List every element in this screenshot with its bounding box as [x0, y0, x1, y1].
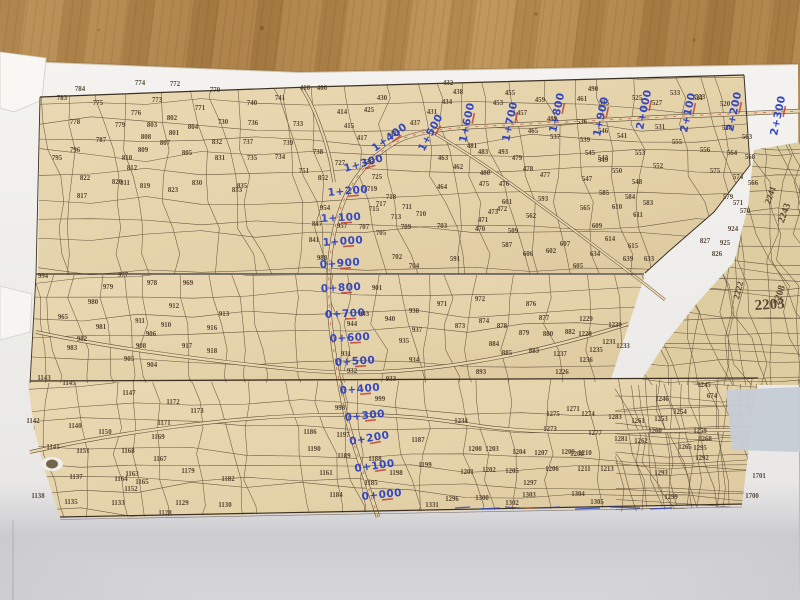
parcel-label: 1296	[445, 496, 459, 503]
parcel-label: 533	[670, 90, 681, 97]
parcel-label: 639	[623, 256, 634, 263]
parcel-label: 796	[70, 147, 81, 154]
parcel-label: 978	[147, 280, 158, 287]
chainage-label: 0+700	[325, 307, 366, 321]
parcel-label: 1304	[571, 491, 585, 498]
paper-gap-grey-patch	[726, 387, 800, 452]
parcel-label: 610	[612, 204, 623, 211]
parcel-label: 808	[141, 134, 152, 141]
parcel-label: 553	[635, 150, 646, 157]
parcel-label: 783	[57, 95, 68, 102]
parcel-label: 476	[499, 181, 510, 188]
parcel-label: 1173	[190, 408, 204, 415]
parcel-label: 908	[136, 343, 147, 350]
parcel-label: 820	[112, 179, 123, 186]
wood-knots	[98, 12, 696, 41]
parcel-label: 472	[497, 206, 508, 213]
parcel-label: 470	[475, 226, 486, 233]
chainage-label: 0+800	[321, 281, 362, 295]
parcel-label: 1229	[579, 316, 593, 323]
parcel-label: 490	[588, 86, 599, 93]
parcel-label: 1152	[124, 486, 138, 493]
parcel-label: 415	[344, 123, 355, 130]
parcel-label: 773	[152, 97, 163, 104]
parcel-label: 1167	[153, 456, 167, 463]
parcel-label: 738	[313, 149, 324, 156]
parcel-label: 1230	[608, 322, 622, 329]
parcel-label: 556	[700, 147, 711, 154]
parcel-label: 1130	[218, 502, 232, 509]
parcel-label: 1189	[337, 453, 351, 460]
parcel-label: 713	[391, 214, 402, 221]
parcel-label: 805	[182, 150, 193, 157]
parcel-label: 478	[523, 166, 534, 173]
parcel-label: 477	[540, 172, 551, 179]
map-scene: 7847837757747727707717737767787797877967…	[0, 0, 800, 600]
parcel-label: 461	[577, 96, 588, 103]
parcel-label: 1206	[545, 466, 559, 473]
parcel-label: 1253	[654, 416, 668, 423]
parcel-label: 1150	[98, 429, 112, 436]
parcel-label: 601	[502, 199, 513, 206]
parcel-label: 876	[526, 301, 537, 308]
parcel-label: 1201	[460, 469, 474, 476]
parcel-label: 835	[237, 183, 248, 190]
parcel-label: 1165	[135, 479, 149, 486]
parcel-label: 437	[410, 120, 421, 127]
parcel-label: 880	[543, 331, 554, 338]
parcel-label: 937	[412, 327, 423, 334]
photo-of-cadastral-map: 7847837757747727707717737767787797877967…	[0, 0, 800, 600]
parcel-label: 787	[96, 137, 107, 144]
parcel-label: 1151	[76, 448, 90, 455]
parcel-label: 911	[135, 318, 145, 325]
parcel-label: 775	[93, 100, 104, 107]
parcel-label: 552	[653, 163, 664, 170]
parcel-label: 1299	[664, 494, 678, 501]
parcel-label: 414	[337, 109, 348, 116]
parcel-label: 410	[300, 85, 311, 92]
parcel-label: 826	[712, 251, 723, 258]
parcel-label: 1271	[566, 406, 580, 413]
parcel-label: 910	[161, 322, 172, 329]
parcel-label: 1262	[634, 438, 648, 445]
parcel-label: 1237	[553, 351, 567, 358]
parcel-label: 562	[526, 213, 537, 220]
parcel-label: 873	[455, 323, 466, 330]
parcel-label: 480	[480, 170, 491, 177]
svg-text:0+600: 0+600	[330, 331, 371, 345]
parcel-label: 1135	[64, 499, 78, 506]
parcel-label: 982	[77, 336, 88, 343]
parcel-label: 475	[479, 181, 490, 188]
parcel-label: 473	[488, 209, 499, 216]
parcel-label: 804	[188, 124, 199, 131]
parcel-label: 1198	[389, 470, 403, 477]
parcel-label: 605	[573, 263, 584, 270]
parcel-label: 810	[122, 155, 133, 162]
parcel-label: 1260	[648, 428, 662, 435]
parcel-label: 822	[80, 175, 91, 182]
parcel-label: 1245	[697, 382, 711, 389]
parcel-label: 555	[672, 139, 683, 146]
parcel-label: 584	[625, 194, 636, 201]
parcel-label: 725	[372, 174, 383, 181]
parcel-label: 1203	[485, 446, 499, 453]
parcel-label: 1138	[31, 493, 45, 500]
parcel-label: 1208	[570, 451, 584, 458]
parcel-label: 734	[275, 154, 286, 161]
parcel-label: 1331	[425, 502, 439, 509]
parcel-label: 463	[438, 155, 449, 162]
parcel-label: 565	[580, 205, 591, 212]
parcel-label: 1259	[693, 428, 707, 435]
parcel-label: 877	[539, 315, 550, 322]
parcel-label: 812	[127, 165, 138, 172]
parcel-label: 536	[577, 119, 588, 126]
parcel-label: 999	[375, 396, 386, 403]
parcel-label: 549	[598, 157, 609, 164]
parcel-label: 772	[170, 81, 181, 88]
parcel-label: 527	[652, 100, 663, 107]
parcel-label: 1293	[654, 470, 668, 477]
parcel-label: 733	[293, 121, 304, 128]
parcel-label: 801	[169, 130, 180, 137]
parcel-label: 704	[409, 263, 420, 270]
parcel-label: 709	[401, 224, 412, 231]
parcel-label: 614	[605, 236, 616, 243]
parcel-label: 548	[632, 179, 643, 186]
parcel-label: 715	[369, 206, 380, 213]
parcel-label: 938	[409, 308, 420, 315]
parcel-label: 980	[88, 299, 99, 306]
parcel-label: 994	[38, 273, 49, 280]
parcel-label: 570	[740, 208, 751, 215]
parcel-label: 564	[727, 150, 738, 157]
parcel-label: 940	[385, 316, 396, 323]
parcel-label: 483	[478, 149, 489, 156]
parcel-label: 1283	[608, 414, 622, 421]
parcel-label: 583	[643, 200, 654, 207]
parcel-label: 707	[359, 224, 370, 231]
parcel-label: 1147	[122, 390, 136, 397]
parcel-label: 1277	[588, 430, 602, 437]
parcel-label: 965	[58, 314, 69, 321]
parcel-label: 493	[498, 149, 509, 156]
parcel-label: 918	[207, 348, 218, 355]
parcel-label: 1265	[678, 444, 692, 451]
parcel-label: 591	[450, 256, 461, 263]
parcel-label: 730	[218, 119, 229, 126]
parcel-label: 802	[167, 115, 178, 122]
parcel-label: 1233	[616, 343, 630, 350]
parcel-label: 1302	[505, 500, 519, 507]
parcel-label: 904	[147, 362, 158, 369]
parcel-label: 740	[247, 100, 258, 107]
parcel-label: 809	[138, 147, 149, 154]
parcel-label: 874	[479, 318, 490, 325]
parcel-label: 1142	[26, 418, 40, 425]
parcel-label: 471	[478, 217, 489, 224]
parcel-label: 1145	[62, 380, 76, 387]
parcel-label: 883	[529, 348, 540, 355]
parcel-label: 778	[70, 119, 81, 126]
parcel-label: 1204	[512, 449, 526, 456]
parcel-label: 969	[183, 280, 194, 287]
parcel-label: 852	[318, 175, 329, 182]
parcel-label: 1700	[745, 493, 759, 500]
parcel-label: 574	[733, 174, 744, 181]
svg-text:0+700: 0+700	[325, 307, 366, 321]
parcel-label: 932	[347, 368, 358, 375]
parcel-label: 430	[377, 95, 388, 102]
parcel-label: 882	[565, 329, 576, 336]
parcel-label: 1213	[600, 466, 614, 473]
parcel-label: 1701	[752, 473, 766, 480]
parcel-label: 935	[399, 338, 410, 345]
parcel-label: 711	[402, 204, 412, 211]
parcel-label: 531	[655, 124, 666, 131]
parcel-label: 1268	[698, 436, 712, 443]
chainage-label: 0+600	[330, 331, 371, 345]
parcel-label: 417	[357, 135, 368, 142]
parcel-label: 1199	[418, 462, 432, 469]
parcel-label: 817	[77, 193, 88, 200]
parcel-label: 1207	[534, 450, 548, 457]
parcel-label: 1274	[581, 411, 595, 418]
parcel-label: 634	[590, 251, 601, 258]
parcel-label: 465	[528, 128, 539, 135]
parcel-label: 827	[700, 238, 711, 245]
parcel-label: 1143	[37, 375, 51, 382]
paper-tab-left	[0, 286, 32, 340]
parcel-label: 954	[320, 205, 331, 212]
parcel-label: 432	[443, 80, 454, 87]
parcel-label: 1137	[69, 474, 83, 481]
parcel-label: 944	[347, 321, 358, 328]
parcel-label: 615	[628, 243, 639, 250]
parcel-label: 1228	[578, 331, 592, 338]
parcel-label: 464	[437, 184, 448, 191]
parcel-label: 803	[147, 122, 158, 129]
parcel-label: 1205	[505, 468, 519, 475]
parcel-label: 934	[409, 357, 420, 364]
parcel-label: 718	[386, 194, 397, 201]
parcel-label: 455	[505, 90, 516, 97]
parcel-label: 916	[207, 325, 218, 332]
parcel-label: 830	[192, 180, 203, 187]
parcel-label: 607	[560, 241, 571, 248]
parcel-label: 841	[309, 237, 320, 244]
parcel-label: 770	[210, 87, 221, 94]
parcel-label: 462	[453, 164, 464, 171]
parcel-label: 571	[733, 200, 744, 207]
parcel-label: 459	[535, 97, 546, 104]
parcel-label: 1168	[121, 448, 135, 455]
parcel-label: 739	[283, 140, 294, 147]
parcel-label: 751	[299, 168, 310, 175]
parcel-label: 1236	[579, 357, 593, 364]
parcel-label: 550	[612, 168, 623, 175]
parcel-label: 611	[633, 212, 643, 219]
parcel-label: 983	[67, 345, 78, 352]
parcel-label: 977	[118, 272, 129, 279]
parcel-label: 901	[372, 285, 383, 292]
parcel-label: 633	[644, 256, 655, 263]
parcel-label: 400	[317, 85, 328, 92]
parcel-label: 737	[243, 139, 254, 146]
parcel-label: 884	[489, 341, 500, 348]
parcel-label: 912	[169, 303, 180, 310]
parcel-label: 879	[519, 330, 530, 337]
parcel-label: 774	[135, 80, 146, 87]
parcel-label: 1234	[454, 418, 468, 425]
parcel-label: 563	[742, 134, 753, 141]
parcel-label: 434	[442, 99, 453, 106]
parcel-label: 575	[710, 168, 721, 175]
parcel-label: 453	[493, 100, 504, 107]
parcel-label: 602	[546, 248, 557, 255]
parcel-label: 831	[215, 155, 226, 162]
parcel-label: 1254	[673, 409, 687, 416]
parcel-label: 587	[502, 242, 513, 249]
parcel-label: 1182	[221, 476, 235, 483]
parcel-label: 1300	[475, 495, 489, 502]
parcel-label: 1161	[319, 470, 333, 477]
parcel-label: 1246	[655, 396, 669, 403]
parcel-label: 541	[617, 133, 628, 140]
parcel-label: 1164	[114, 476, 128, 483]
parcel-label: 479	[512, 155, 523, 162]
parcel-label: 971	[437, 301, 448, 308]
parcel-label: 823	[168, 187, 179, 194]
parcel-label: 924	[728, 226, 739, 233]
parcel-label: 1297	[523, 480, 537, 487]
parcel-label: 537	[550, 134, 561, 141]
parcel-label: 998	[335, 405, 346, 412]
parcel-label: 1231	[602, 339, 616, 346]
parcel-label: 981	[96, 324, 107, 331]
svg-text:0+800: 0+800	[321, 281, 362, 295]
parcel-label: 606	[523, 251, 534, 258]
parcel-label: 1275	[546, 411, 560, 418]
parcel-label: 1202	[482, 467, 496, 474]
parcel-label: 703	[437, 223, 448, 230]
parcel-label: 438	[453, 89, 464, 96]
parcel-label: 547	[582, 176, 593, 183]
parcel-label: 1190	[307, 446, 321, 453]
parcel-label: 736	[248, 120, 259, 127]
parcel-label: 1185	[364, 480, 378, 487]
parcel-label: 878	[497, 323, 508, 330]
parcel-label: 545	[585, 150, 596, 157]
parcel-label: 1261	[631, 418, 645, 425]
parcel-label: 1226	[555, 369, 569, 376]
parcel-label: 1133	[111, 500, 125, 507]
parcel-label: 913	[219, 311, 230, 318]
parcel-label: 972	[475, 296, 486, 303]
parcel-label: 1184	[329, 492, 343, 499]
parcel-label: 893	[476, 369, 487, 376]
parcel-label: 979	[103, 284, 114, 291]
parcel-label: 425	[364, 107, 375, 114]
parcel-label: 1200	[468, 446, 482, 453]
parcel-label: 819	[140, 183, 151, 190]
parcel-label: 906	[146, 331, 157, 338]
parcel-label: 1295	[693, 445, 707, 452]
parcel-label: 702	[392, 254, 403, 261]
parcel-label: 1303	[522, 492, 536, 499]
parcel-label: 1141	[46, 444, 60, 451]
parcel-label: 1171	[157, 420, 171, 427]
parcel-label: 1211	[577, 466, 591, 473]
parcel-label: 885	[502, 350, 513, 357]
parcel-label: 795	[52, 155, 63, 162]
parcel-label: 776	[131, 110, 142, 117]
parcel-label: 1186	[303, 429, 317, 436]
parcel-label: 710	[416, 211, 427, 218]
parcel-label: 539	[580, 137, 591, 144]
parcel-label: 933	[386, 376, 397, 383]
parcel-label: 1273	[543, 426, 557, 433]
parcel-label: 925	[720, 240, 731, 247]
parcel-label: 1172	[166, 399, 180, 406]
parcel-label: 585	[599, 190, 610, 197]
parcel-label: 741	[275, 95, 286, 102]
parcel-label: 807	[160, 140, 171, 147]
parcel-label: 779	[115, 122, 126, 129]
parcel-label: 1281	[614, 436, 628, 443]
parcel-label: 566	[748, 180, 759, 187]
parcel-label: 1129	[175, 500, 189, 507]
parcel-label: 705	[376, 230, 387, 237]
parcel-label: 1179	[181, 468, 195, 475]
parcel-label: 735	[247, 155, 258, 162]
svg-text:1+100: 1+100	[321, 211, 362, 225]
parcel-label: 593	[538, 196, 549, 203]
parcel-label: 1305	[590, 499, 604, 506]
paper-tear-hole	[41, 457, 63, 471]
parcel-label: 609	[592, 223, 603, 230]
parcel-label: 568	[745, 154, 756, 161]
parcel-label: 905	[124, 356, 135, 363]
parcel-label: 771	[195, 105, 206, 112]
parcel-label: 674	[707, 393, 718, 400]
parcel-label: 1128	[158, 510, 172, 517]
parcel-label: 1140	[68, 423, 82, 430]
parcel-label: 1235	[589, 347, 603, 354]
parcel-label: 719	[367, 186, 378, 193]
chainage-label: 1+100	[321, 211, 362, 225]
parcel-label: 1187	[411, 437, 425, 444]
parcel-label: 1292	[695, 455, 709, 462]
parcel-label: 1169	[151, 434, 165, 441]
parcel-label: 509	[508, 228, 519, 235]
parcel-label: 784	[75, 86, 86, 93]
parcel-label: 832	[212, 139, 223, 146]
parcel-label: 917	[182, 343, 193, 350]
